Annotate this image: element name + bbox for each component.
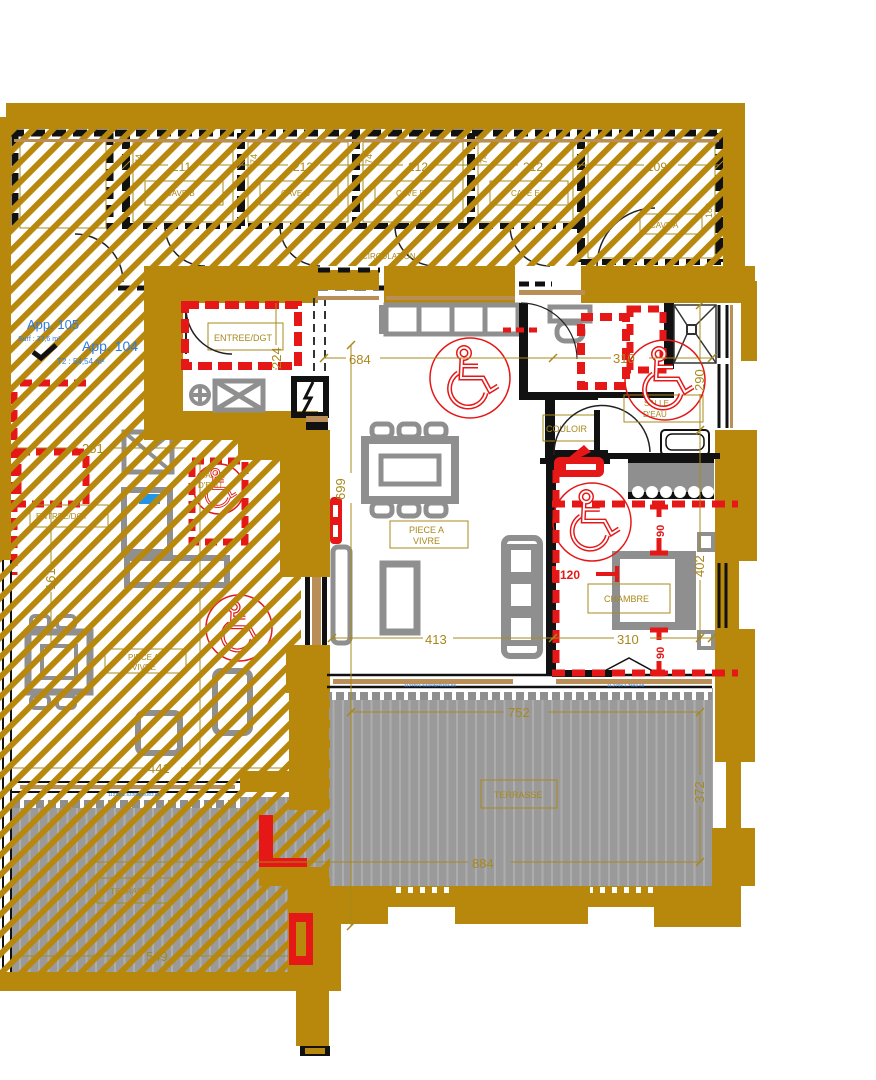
svg-text:441: 441 xyxy=(148,761,170,776)
svg-text:D'EAU: D'EAU xyxy=(643,410,667,419)
svg-text:PIECE A: PIECE A xyxy=(409,525,444,535)
svg-text:402: 402 xyxy=(692,555,707,577)
svg-text:699: 699 xyxy=(333,478,348,500)
svg-text:90: 90 xyxy=(655,647,667,659)
svg-text:VIVRE: VIVRE xyxy=(413,536,440,546)
svg-text:COULOIR: COULOIR xyxy=(546,424,588,434)
svg-text:11.2708 1.7582.68: 11.2708 1.7582.68 xyxy=(607,683,645,688)
svg-text:App. 104: App. 104 xyxy=(82,338,138,354)
svg-text:413: 413 xyxy=(425,632,447,647)
svg-text:310: 310 xyxy=(613,351,635,366)
svg-text:ENTREE/DGT: ENTREE/DGT xyxy=(214,333,273,343)
svg-text:120: 120 xyxy=(560,568,580,582)
svg-text:884: 884 xyxy=(472,856,494,871)
svg-text:T2 : 54,54 m²: T2 : 54,54 m² xyxy=(57,357,105,366)
svg-text:TERRASSE: TERRASSE xyxy=(494,790,543,800)
svg-text:549: 549 xyxy=(146,949,168,964)
svg-text:1127001.533/958'0303.68: 1127001.533/958'0303.68 xyxy=(404,683,456,688)
svg-text:224: 224 xyxy=(269,347,284,369)
svg-text:752: 752 xyxy=(508,705,530,720)
svg-text:App. 105: App. 105 xyxy=(27,317,79,332)
svg-text:161: 161 xyxy=(43,568,58,590)
svg-text:372: 372 xyxy=(692,781,707,803)
svg-text:Surf : 37,6 m²: Surf : 37,6 m² xyxy=(18,336,61,343)
svg-text:310: 310 xyxy=(617,632,639,647)
svg-text:90: 90 xyxy=(655,525,667,537)
svg-text:290: 290 xyxy=(692,369,707,391)
svg-text:1127001.533/958'0303.68: 1127001.533/958'0303.68 xyxy=(108,792,160,797)
svg-text:CHAMBRE: CHAMBRE xyxy=(604,594,649,604)
svg-text:251: 251 xyxy=(82,441,104,456)
svg-text:684: 684 xyxy=(349,352,371,367)
